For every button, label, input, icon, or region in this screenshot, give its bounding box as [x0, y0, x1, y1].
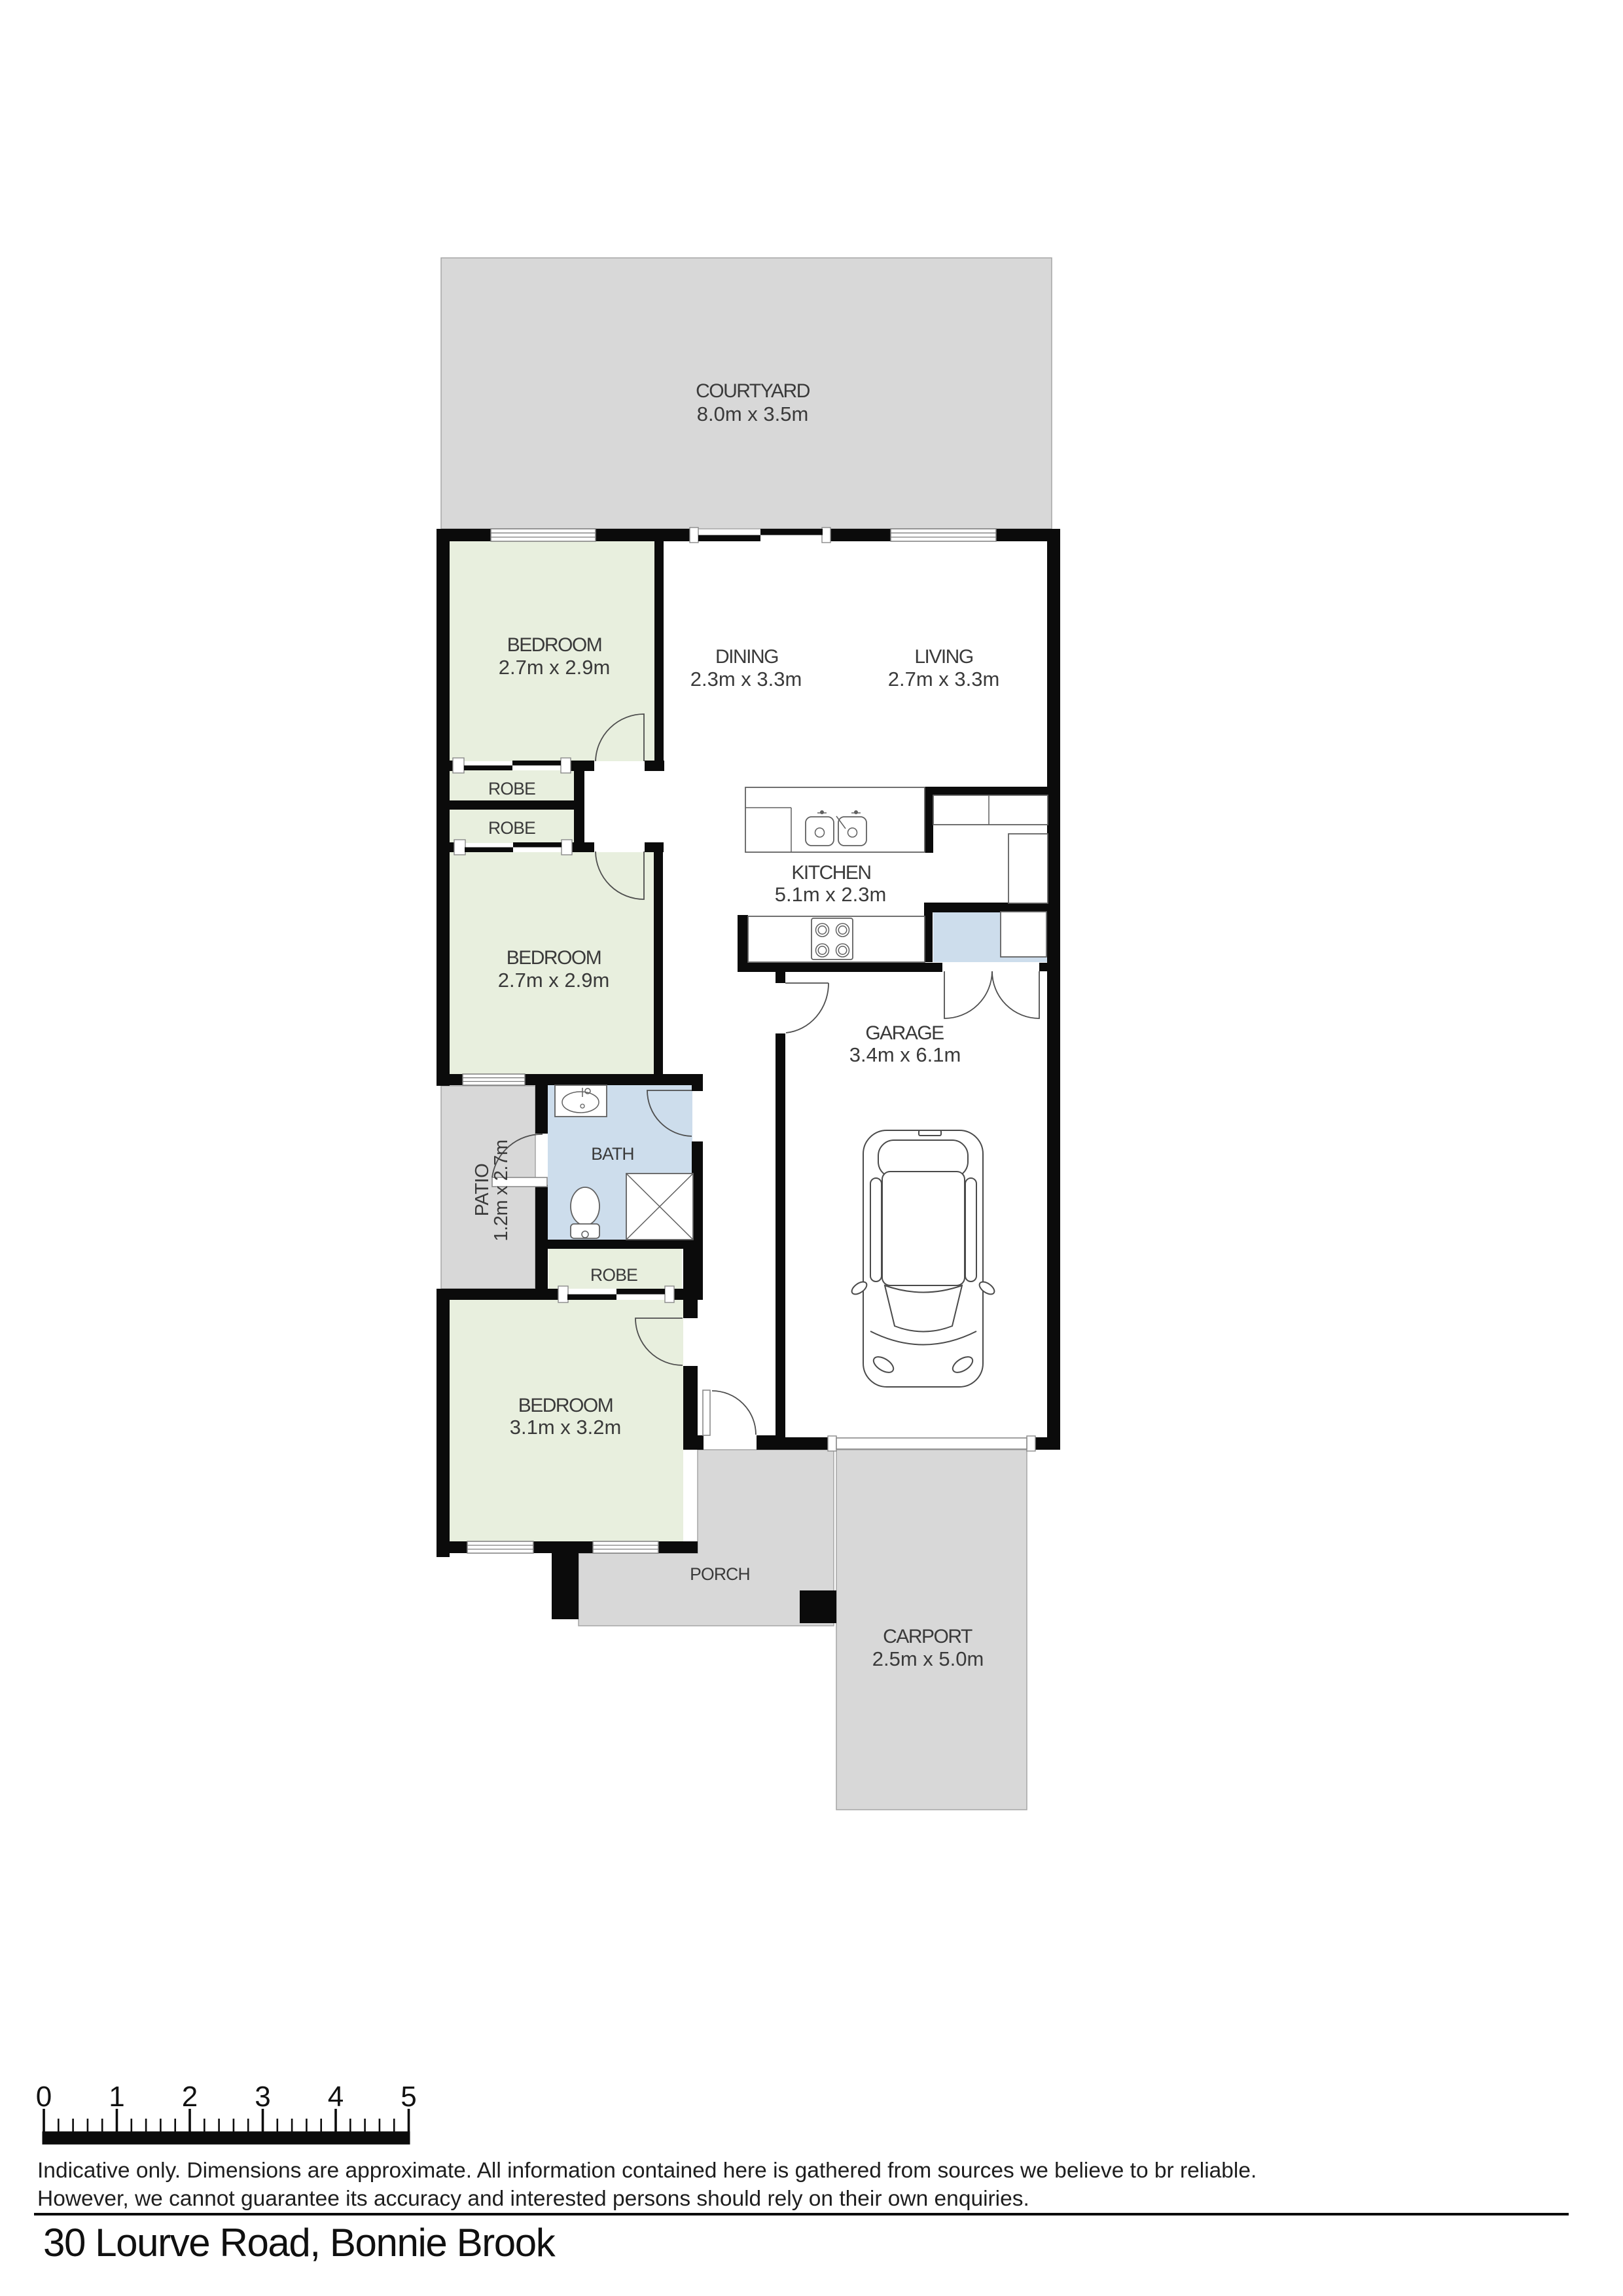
svg-text:PATIO: PATIO: [472, 1164, 493, 1217]
svg-text:COURTYARD: COURTYARD: [696, 380, 810, 402]
svg-text:Indicative only. Dimensions ar: Indicative only. Dimensions are approxim…: [37, 2159, 1257, 2183]
svg-text:GARAGE: GARAGE: [865, 1022, 944, 1044]
svg-text:LIVING: LIVING: [914, 646, 973, 668]
svg-text:DINING: DINING: [715, 646, 778, 668]
svg-text:BATH: BATH: [591, 1144, 634, 1164]
svg-text:1: 1: [109, 2081, 124, 2113]
svg-text:2.7m x 2.9m: 2.7m x 2.9m: [498, 969, 610, 992]
svg-text:3.1m x 3.2m: 3.1m x 3.2m: [510, 1416, 622, 1439]
svg-text:BEDROOM: BEDROOM: [507, 947, 601, 969]
svg-text:2.5m x 5.0m: 2.5m x 5.0m: [872, 1647, 984, 1670]
svg-text:2.7m x 2.9m: 2.7m x 2.9m: [499, 656, 611, 679]
svg-text:5.1m x 2.3m: 5.1m x 2.3m: [775, 883, 887, 906]
svg-text:30 Lourve Road, Bonnie Brook: 30 Lourve Road, Bonnie Brook: [43, 2221, 556, 2265]
svg-text:2: 2: [182, 2081, 198, 2113]
svg-text:5: 5: [401, 2081, 416, 2113]
svg-text:8.0m x 3.5m: 8.0m x 3.5m: [697, 403, 809, 425]
svg-text:4: 4: [328, 2081, 344, 2113]
svg-text:BEDROOM: BEDROOM: [507, 634, 602, 656]
svg-text:CARPORT: CARPORT: [883, 1626, 972, 1647]
svg-text:2.7m x 3.3m: 2.7m x 3.3m: [888, 668, 1000, 691]
svg-text:3: 3: [255, 2081, 270, 2113]
svg-text:3.4m x 6.1m: 3.4m x 6.1m: [849, 1043, 961, 1066]
svg-text:ROBE: ROBE: [488, 779, 535, 798]
svg-text:However, we cannot guarantee i: However, we cannot guarantee its accurac…: [37, 2187, 1029, 2211]
svg-text:KITCHEN: KITCHEN: [791, 862, 870, 884]
svg-text:0: 0: [36, 2081, 52, 2113]
svg-text:1.2m x 2.7m: 1.2m x 2.7m: [491, 1139, 512, 1241]
svg-text:BEDROOM: BEDROOM: [518, 1395, 613, 1416]
svg-text:ROBE: ROBE: [488, 818, 535, 838]
svg-text:ROBE: ROBE: [590, 1265, 637, 1285]
svg-text:2.3m x 3.3m: 2.3m x 3.3m: [690, 668, 802, 691]
svg-text:PORCH: PORCH: [690, 1564, 750, 1584]
